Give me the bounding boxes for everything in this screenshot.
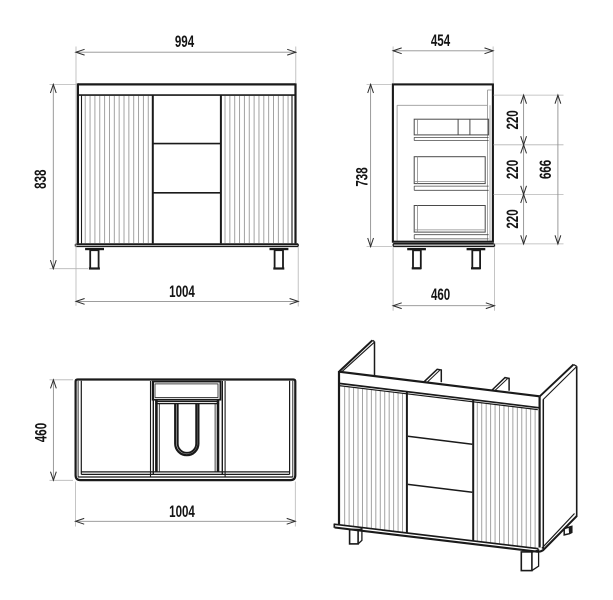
svg-text:220: 220 <box>504 209 523 228</box>
svg-text:454: 454 <box>431 32 450 51</box>
svg-text:220: 220 <box>504 160 523 179</box>
svg-text:460: 460 <box>32 423 51 442</box>
svg-text:460: 460 <box>431 286 450 305</box>
svg-text:220: 220 <box>504 110 523 129</box>
svg-text:994: 994 <box>175 33 194 52</box>
svg-text:666: 666 <box>537 160 556 179</box>
svg-text:738: 738 <box>354 167 373 186</box>
svg-text:1004: 1004 <box>169 283 195 302</box>
svg-text:838: 838 <box>32 170 51 189</box>
svg-text:1004: 1004 <box>169 503 195 522</box>
